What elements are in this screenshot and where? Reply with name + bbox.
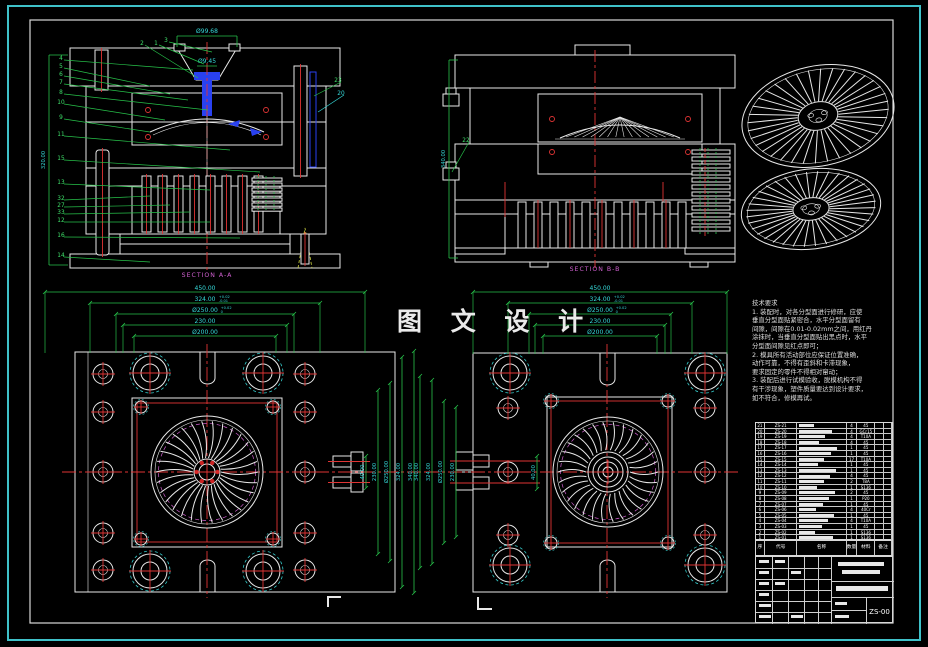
- bom-cell: ZS-09: [765, 490, 798, 495]
- part-callout: 9: [59, 115, 63, 121]
- bom-cell: 17: [756, 445, 765, 450]
- bom-cell: [797, 490, 846, 495]
- titleblock-redacted-text: [835, 615, 849, 618]
- corner-mark: [328, 597, 341, 607]
- bom-cell: ZS-08: [765, 496, 798, 501]
- bom-header-cell: 备注: [875, 541, 892, 555]
- bom-name-redacted: [799, 480, 823, 483]
- bom-cell: T8A: [857, 479, 875, 484]
- dim-height-a: 320.00: [41, 151, 47, 169]
- bom-cell: [875, 445, 884, 450]
- dimension-label: 324.00: [426, 463, 432, 481]
- bom-cell: 1: [847, 513, 858, 518]
- title-block: ZS-00: [755, 556, 893, 623]
- bom-cell: [875, 468, 884, 473]
- bom-cell: 1: [847, 530, 858, 535]
- bom-name-redacted: [799, 458, 824, 461]
- titleblock-redacted-text: [759, 571, 769, 574]
- bom-name-redacted: [799, 491, 835, 494]
- bom-cell: [797, 524, 846, 529]
- bom-cell: [875, 473, 884, 478]
- part-callout: 4: [59, 56, 63, 62]
- dimension-label: 450.00: [195, 285, 216, 292]
- bom-cell: [875, 434, 884, 439]
- bom-cell: T10A: [857, 434, 875, 439]
- bom-cell: [884, 473, 892, 478]
- dimension-label: Ø250.00: [383, 461, 390, 483]
- bom-cell: 1: [847, 451, 858, 456]
- bom-cell: [875, 496, 884, 501]
- bom-cell: [797, 485, 846, 490]
- bom-cell: [884, 462, 892, 467]
- side-lock: [443, 168, 459, 180]
- bom-name-redacted: [799, 424, 813, 427]
- bom-name-redacted: [799, 525, 821, 528]
- bom-cell: [884, 530, 892, 535]
- company-name-bar: [842, 570, 880, 574]
- bom-cell: 15: [756, 457, 765, 462]
- part-callout: 16: [57, 233, 65, 239]
- dimension-label: 450.00: [590, 285, 611, 292]
- dimension-label: -0.01: [614, 299, 623, 303]
- bom-cell: 1: [847, 485, 858, 490]
- bom-cell: 45: [857, 468, 875, 473]
- notes-line: 垂直分型面贴紧密合，水平分型面留有: [752, 316, 904, 325]
- dimension-label: Ø250.00: [437, 461, 444, 483]
- bom-cell: ZS-12: [765, 473, 798, 478]
- bom-header-cell: 代号: [765, 541, 798, 555]
- bom-cell: [884, 513, 892, 518]
- bom-cell: [884, 524, 892, 529]
- bom-cell: [875, 530, 884, 535]
- part-callout: 15: [57, 156, 65, 162]
- bom-cell: [797, 462, 846, 467]
- center-slot: [200, 560, 215, 592]
- bom-cell: ZS-02: [765, 530, 798, 535]
- bom-cell: 1: [847, 445, 858, 450]
- part-callout: 10: [57, 100, 65, 106]
- bom-cell: [875, 423, 884, 428]
- bom-cell: [875, 524, 884, 529]
- bom-name-redacted: [799, 435, 825, 438]
- section-b-label: SECTION B-B: [570, 266, 621, 273]
- impeller-iso-top: [732, 51, 903, 181]
- dimension-label: -0.01: [219, 299, 228, 303]
- bom-cell: ZS-10: [765, 485, 798, 490]
- bom-name-redacted: [799, 503, 822, 506]
- bom-cell: [797, 518, 846, 523]
- bom-cell: 4: [847, 440, 858, 445]
- notes-line: 3. 装配后进行试模验收，脱模机构不得: [752, 376, 904, 385]
- part-callout: 3: [164, 38, 168, 44]
- bom-name-redacted: [799, 536, 833, 539]
- bom-cell: [875, 462, 884, 467]
- center-slot: [600, 353, 615, 385]
- bom-cell: [875, 518, 884, 523]
- bom-cell: [797, 451, 846, 456]
- bom-cell: 4: [847, 518, 858, 523]
- tech-notes: 技术要求 1. 装配时，对各分型面进行修研，应使垂直分型面贴紧密合，水平分型面留…: [752, 299, 904, 402]
- bom-cell: [875, 429, 884, 434]
- notes-line: 动作可靠，不得有歪斜和卡滞现象，: [752, 359, 904, 368]
- titleblock-redacted-text: [759, 560, 769, 563]
- corner-mark: [478, 597, 492, 609]
- part-callout: 14: [57, 253, 65, 259]
- bom-cell: 4: [847, 434, 858, 439]
- bom-cell: 9: [756, 490, 765, 495]
- bom-cell: 12: [756, 473, 765, 478]
- bom-cell: [797, 502, 846, 507]
- bom-cell: [884, 468, 892, 473]
- drawing-number: ZS-00: [866, 601, 893, 624]
- bom-cell: [884, 434, 892, 439]
- part-callout: 7: [59, 80, 63, 86]
- bom-cell: ZS-14: [765, 462, 798, 467]
- titleblock-redacted-text: [759, 593, 769, 596]
- bom-cell: 1: [847, 502, 858, 507]
- bom-cell: [797, 434, 846, 439]
- bom-cell: 7: [756, 502, 765, 507]
- center-slot: [200, 352, 215, 384]
- part-callout: 27: [57, 203, 65, 209]
- bom-header-cell: 名称: [797, 541, 846, 555]
- bom-cell: [797, 457, 846, 462]
- bom-cell: P20: [857, 496, 875, 501]
- bom-name-redacted: [799, 469, 836, 472]
- bom-cell: 45: [857, 513, 875, 518]
- bom-name-redacted: [799, 497, 828, 500]
- bom-cell: 45: [857, 423, 875, 428]
- bom-cell: [875, 440, 884, 445]
- bom-header-cell: 序号: [756, 541, 765, 555]
- notes-line: 如不符合，修模再试。: [752, 394, 904, 403]
- bom-name-redacted: [799, 486, 817, 489]
- bom-name-redacted: [799, 514, 834, 517]
- notes-line: 2. 模具所有活动部位应保证位置准确，: [752, 351, 904, 360]
- bom-cell: [884, 496, 892, 501]
- dim-height-b: 340.00: [441, 150, 447, 168]
- bom-cell: 17: [847, 457, 858, 462]
- dim-sprue-dia: Ø99.68: [196, 28, 218, 35]
- bom-cell: [797, 530, 846, 535]
- side-lock: [443, 94, 459, 106]
- bom-cell: ZS-07: [765, 502, 798, 507]
- part-callout: 22: [462, 138, 470, 144]
- cooling-fitting: [456, 472, 473, 490]
- titleblock-redacted-text: [759, 604, 771, 607]
- drawing-title-bar: [836, 586, 888, 591]
- bom-cell: [875, 479, 884, 484]
- bom-cell: 13: [756, 468, 765, 473]
- dimension-label: 0: [616, 310, 619, 314]
- part-callout: 11: [57, 132, 65, 138]
- bom-cell: ZS-18: [765, 440, 798, 445]
- bom-cell: [797, 429, 846, 434]
- bom-table: 21ZS-2144520ZS-204GCr1519ZS-194T10A18ZS-…: [755, 422, 893, 540]
- bom-header-cell: 材料: [857, 541, 875, 555]
- bom-cell: [797, 445, 846, 450]
- bom-cell: 45: [857, 440, 875, 445]
- part-callout: 33: [57, 210, 65, 216]
- bom-cell: [875, 490, 884, 495]
- bom-cell: 20: [756, 429, 765, 434]
- bom-cell: [884, 429, 892, 434]
- bom-cell: [875, 451, 884, 456]
- bom-cell: [884, 518, 892, 523]
- bom-cell: ZS-04: [765, 518, 798, 523]
- center-slot: [600, 560, 615, 592]
- impeller-iso-bottom: [737, 161, 886, 257]
- dimension-label: 230.00: [372, 463, 378, 481]
- bom-cell: ZS-06: [765, 507, 798, 512]
- bom-cell: 5: [756, 513, 765, 518]
- bom-cell: 45: [857, 502, 875, 507]
- bom-cell: ZS-05: [765, 513, 798, 518]
- bom-cell: [797, 468, 846, 473]
- bom-cell: 18: [756, 440, 765, 445]
- bom-cell: 45: [857, 445, 875, 450]
- bom-cell: 19: [756, 434, 765, 439]
- dimension-label: Ø250.00: [192, 307, 218, 314]
- dimension-label: 40.00: [360, 465, 366, 480]
- bom-cell: ZS-16: [765, 451, 798, 456]
- bom-cell: 2: [847, 490, 858, 495]
- bom-cell: 1: [847, 524, 858, 529]
- bom-cell: [797, 479, 846, 484]
- bom-cell: 10: [756, 485, 765, 490]
- bom-cell: 45: [857, 451, 875, 456]
- bom-cell: [875, 485, 884, 490]
- dimension-label: 324.00: [396, 463, 402, 481]
- tech-notes-title: 技术要求: [752, 299, 904, 308]
- bom-cell: ZS-17: [765, 445, 798, 450]
- bom-name-redacted: [799, 508, 816, 511]
- bom-cell: ZS-15: [765, 457, 798, 462]
- dim-sprue-small: Ø9.45: [198, 58, 216, 65]
- bom-cell: [797, 440, 846, 445]
- bom-cell: 21: [756, 423, 765, 428]
- bom-cell: T10A: [857, 518, 875, 523]
- bom-cell: [797, 507, 846, 512]
- dimension-label: 340.00: [414, 463, 420, 481]
- bom-name-redacted: [799, 441, 819, 444]
- bom-cell: 4: [847, 429, 858, 434]
- bom-cell: 1: [847, 496, 858, 501]
- bom-name-redacted: [799, 452, 830, 455]
- notes-line: 涂抹时，当垂直分型面贴出黑点时，水平: [752, 333, 904, 342]
- notes-line: 分型面间隙见红点即可；: [752, 342, 904, 351]
- bom-header: 序号代号名称数量材料备注: [755, 540, 893, 556]
- part-callout: 1: [154, 41, 158, 47]
- titleblock-redacted-text: [775, 560, 785, 563]
- bom-cell: [875, 507, 884, 512]
- titleblock-redacted-text: [791, 571, 801, 574]
- part-callout: 6: [59, 72, 63, 78]
- bom-cell: [797, 513, 846, 518]
- bom-cell: ZS-13: [765, 468, 798, 473]
- dimension-label: 230.00: [450, 463, 456, 481]
- bom-cell: 4: [756, 518, 765, 523]
- part-callout: 23: [334, 78, 342, 84]
- dimension-label: Ø200.00: [192, 329, 218, 336]
- bom-cell: 1: [847, 462, 858, 467]
- bom-cell: 3: [756, 524, 765, 529]
- titleblock-redacted-text: [759, 582, 769, 585]
- bom-cell: 2: [756, 530, 765, 535]
- bom-cell: [884, 457, 892, 462]
- dimension-label: 324.00: [195, 296, 216, 303]
- dimension-label: 230.00: [195, 318, 216, 325]
- bom-cell: [875, 513, 884, 518]
- bom-name-redacted: [799, 531, 815, 534]
- notes-line: 有干涉现象，塑件质量要达到设计要求，: [752, 385, 904, 394]
- bom-name-redacted: [799, 475, 829, 478]
- part-callout: 12: [57, 218, 65, 224]
- bom-cell: S136: [857, 530, 875, 535]
- bom-cell: [797, 496, 846, 501]
- bom-cell: 45: [857, 490, 875, 495]
- bom-cell: 6: [756, 507, 765, 512]
- titleblock-redacted-text: [835, 602, 847, 605]
- bom-cell: [797, 423, 846, 428]
- dimension-label: 0: [221, 310, 224, 314]
- part-callout: 13: [57, 180, 65, 186]
- bom-cell: 4: [847, 473, 858, 478]
- section-a-view: Ø99.68 Ø9.45 320.00 SECTION A-A: [41, 28, 340, 279]
- bom-name-redacted: [799, 519, 827, 522]
- bom-cell: [875, 502, 884, 507]
- titleblock-redacted-text: [759, 615, 771, 618]
- bom-cell: [884, 507, 892, 512]
- bom-cell: 4: [847, 507, 858, 512]
- cad-sheet: Ø99.68 Ø9.45 320.00 SECTION A-A 340.00 S…: [0, 0, 928, 647]
- part-callout: 32: [57, 196, 65, 202]
- bom-name-redacted: [799, 447, 837, 450]
- bom-cell: [884, 440, 892, 445]
- dimension-label: 40.00: [531, 465, 537, 480]
- bom-cell: 14: [756, 462, 765, 467]
- bom-cell: ZS-11: [765, 479, 798, 484]
- bom-cell: 45: [857, 473, 875, 478]
- bom-name-redacted: [799, 463, 818, 466]
- bom-cell: [884, 479, 892, 484]
- bom-cell: ZS-03: [765, 524, 798, 529]
- part-callout: 2: [140, 41, 144, 47]
- titleblock-redacted-text: [775, 582, 785, 585]
- bom-cell: 1: [847, 468, 858, 473]
- bom-cell: [797, 473, 846, 478]
- bom-cell: GCr15: [857, 429, 875, 434]
- bom-cell: 40Cr: [857, 507, 875, 512]
- bom-cell: [884, 423, 892, 428]
- bom-cell: 8: [756, 496, 765, 501]
- bom-cell: ZS-19: [765, 434, 798, 439]
- part-callout: 5: [59, 64, 63, 70]
- company-name-bar: [838, 562, 884, 566]
- titleblock-redacted-text: [791, 615, 803, 618]
- part-callout: 8: [59, 90, 63, 96]
- notes-line: 1. 装配时，对各分型面进行修研，应使: [752, 308, 904, 317]
- bom-cell: [884, 445, 892, 450]
- bom-cell: [875, 457, 884, 462]
- bom-cell: 11: [756, 479, 765, 484]
- bom-cell: 45: [857, 524, 875, 529]
- part-callout: 20: [337, 91, 345, 97]
- bom-cell: [884, 490, 892, 495]
- fan-dome: [560, 125, 680, 138]
- bom-cell: [884, 502, 892, 507]
- bom-cell: S136: [857, 485, 875, 490]
- watermark: 图 文 设 计: [397, 302, 593, 338]
- section-a-label: SECTION A-A: [182, 272, 233, 279]
- bom-name-redacted: [799, 430, 831, 433]
- bom-cell: 45: [857, 462, 875, 467]
- bom-cell: 2: [847, 479, 858, 484]
- bom-cell: [884, 485, 892, 490]
- bom-header-cell: 数量: [847, 541, 858, 555]
- bom-cell: T10A: [857, 457, 875, 462]
- bom-cell: 4: [847, 423, 858, 428]
- bom-cell: [884, 451, 892, 456]
- bom-cell: 16: [756, 451, 765, 456]
- bom-cell: ZS-21: [765, 423, 798, 428]
- bom-cell: ZS-20: [765, 429, 798, 434]
